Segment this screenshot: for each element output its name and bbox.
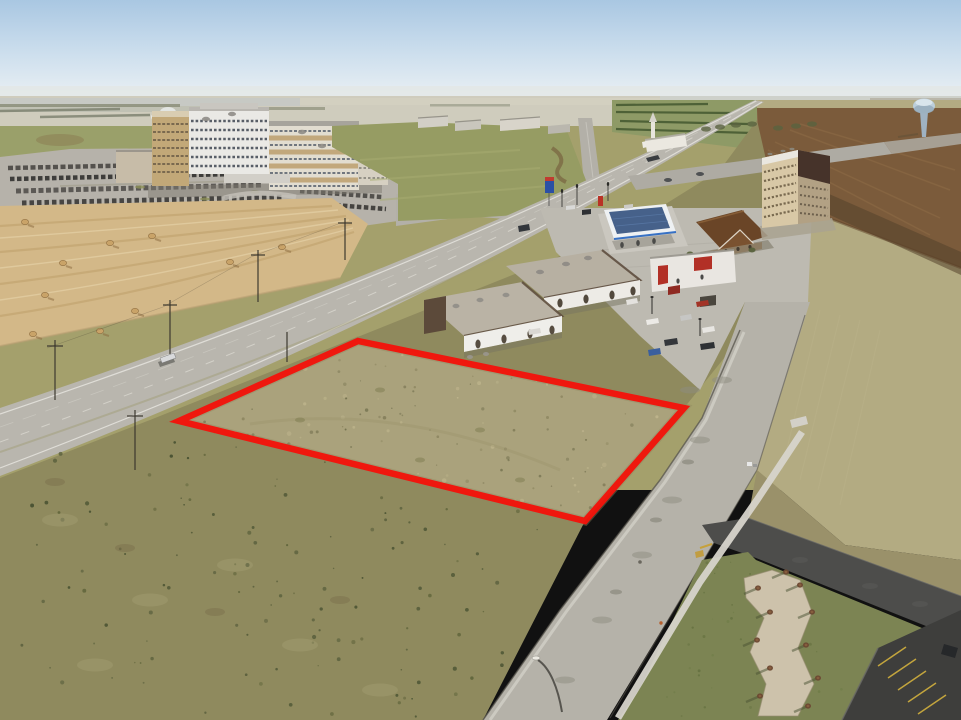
- far-treeline-3: [430, 104, 510, 107]
- far-treeline-1: [0, 104, 180, 107]
- manhole-cover: [638, 560, 642, 564]
- entrance-canopy: [224, 174, 290, 183]
- fastfood-red-accent-1: [658, 265, 668, 285]
- fastfood-red-accent-2: [694, 256, 712, 271]
- hospital-tan-tower: [152, 116, 189, 186]
- billboard-red-top: [545, 177, 554, 181]
- aerial-photograph: [0, 0, 961, 720]
- streetlight-head: [532, 656, 540, 660]
- hospital-center-block: [189, 110, 269, 174]
- campus-dirt-patch: [36, 134, 84, 146]
- stripmall-a-end-wall: [424, 296, 446, 334]
- intersection-car-2: [582, 209, 591, 215]
- east-block-cap: [269, 121, 359, 126]
- water-tower-cap: [916, 99, 933, 106]
- utility-box-gray: [753, 464, 757, 467]
- gas-price-sign: [598, 196, 603, 206]
- center-rooftop: [200, 103, 258, 109]
- utility-box-white: [747, 462, 752, 466]
- far-field-strip-2: [300, 98, 660, 105]
- church-steeple: [651, 122, 655, 138]
- hospital-west-wing: [116, 150, 156, 183]
- tower-cap: [152, 111, 189, 117]
- aerial-photo: [0, 0, 961, 720]
- fire-hydrant: [659, 621, 662, 624]
